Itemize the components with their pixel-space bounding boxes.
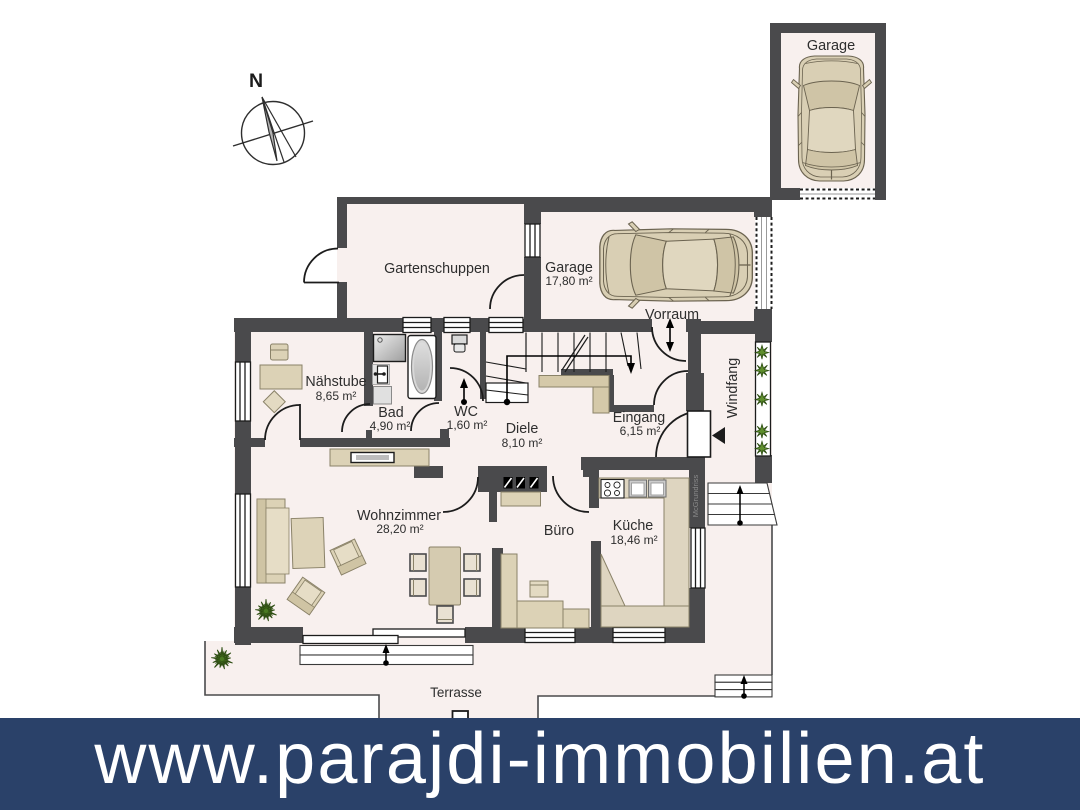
svg-text:www.parajdi-immobilien.at: www.parajdi-immobilien.at xyxy=(93,719,985,799)
svg-text:Windfang: Windfang xyxy=(725,358,741,418)
svg-text:18,46 m²: 18,46 m² xyxy=(610,533,657,547)
svg-text:Büro: Büro xyxy=(544,523,574,539)
svg-text:Küche: Küche xyxy=(613,518,654,534)
svg-text:1,60 m²: 1,60 m² xyxy=(447,418,488,432)
svg-text:8,65 m²: 8,65 m² xyxy=(316,389,357,403)
svg-text:N: N xyxy=(249,70,263,92)
svg-text:Vorraum: Vorraum xyxy=(645,307,699,323)
svg-text:28,20 m²: 28,20 m² xyxy=(376,522,423,536)
svg-text:8,10 m²: 8,10 m² xyxy=(502,436,543,450)
svg-text:6,15 m²: 6,15 m² xyxy=(620,424,661,438)
svg-text:17,80 m²: 17,80 m² xyxy=(545,274,592,288)
svg-text:Diele: Diele xyxy=(506,421,539,437)
svg-text:Terrasse: Terrasse xyxy=(430,685,482,700)
svg-text:Nähstube: Nähstube xyxy=(305,374,366,390)
svg-text:Gartenschuppen: Gartenschuppen xyxy=(384,261,490,277)
svg-text:4,90 m²: 4,90 m² xyxy=(370,419,411,433)
svg-text:Garage: Garage xyxy=(807,38,855,54)
svg-text:McGrundriss: McGrundriss xyxy=(691,475,700,518)
